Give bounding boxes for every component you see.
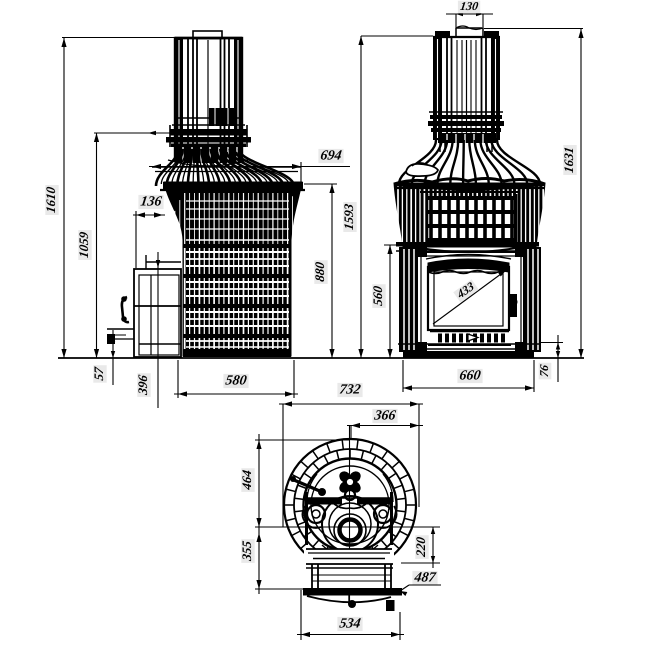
svg-text:1610: 1610 <box>43 185 58 214</box>
svg-text:580: 580 <box>224 372 247 388</box>
svg-text:560: 560 <box>370 285 385 307</box>
svg-text:1631: 1631 <box>561 146 576 174</box>
svg-text:366: 366 <box>372 407 397 423</box>
svg-text:1059: 1059 <box>76 230 91 259</box>
svg-text:220: 220 <box>413 536 428 559</box>
svg-text:355: 355 <box>239 540 254 563</box>
svg-text:694: 694 <box>319 147 342 163</box>
svg-text:534: 534 <box>338 615 361 631</box>
svg-text:396: 396 <box>135 374 150 397</box>
svg-text:732: 732 <box>338 381 361 397</box>
svg-text:136: 136 <box>139 193 163 209</box>
svg-text:464: 464 <box>239 469 254 492</box>
svg-text:660: 660 <box>458 367 481 383</box>
svg-text:487: 487 <box>412 569 437 585</box>
svg-text:880: 880 <box>312 261 327 283</box>
svg-text:130: 130 <box>459 0 479 13</box>
svg-text:57: 57 <box>91 366 106 382</box>
svg-text:1593: 1593 <box>341 202 356 231</box>
